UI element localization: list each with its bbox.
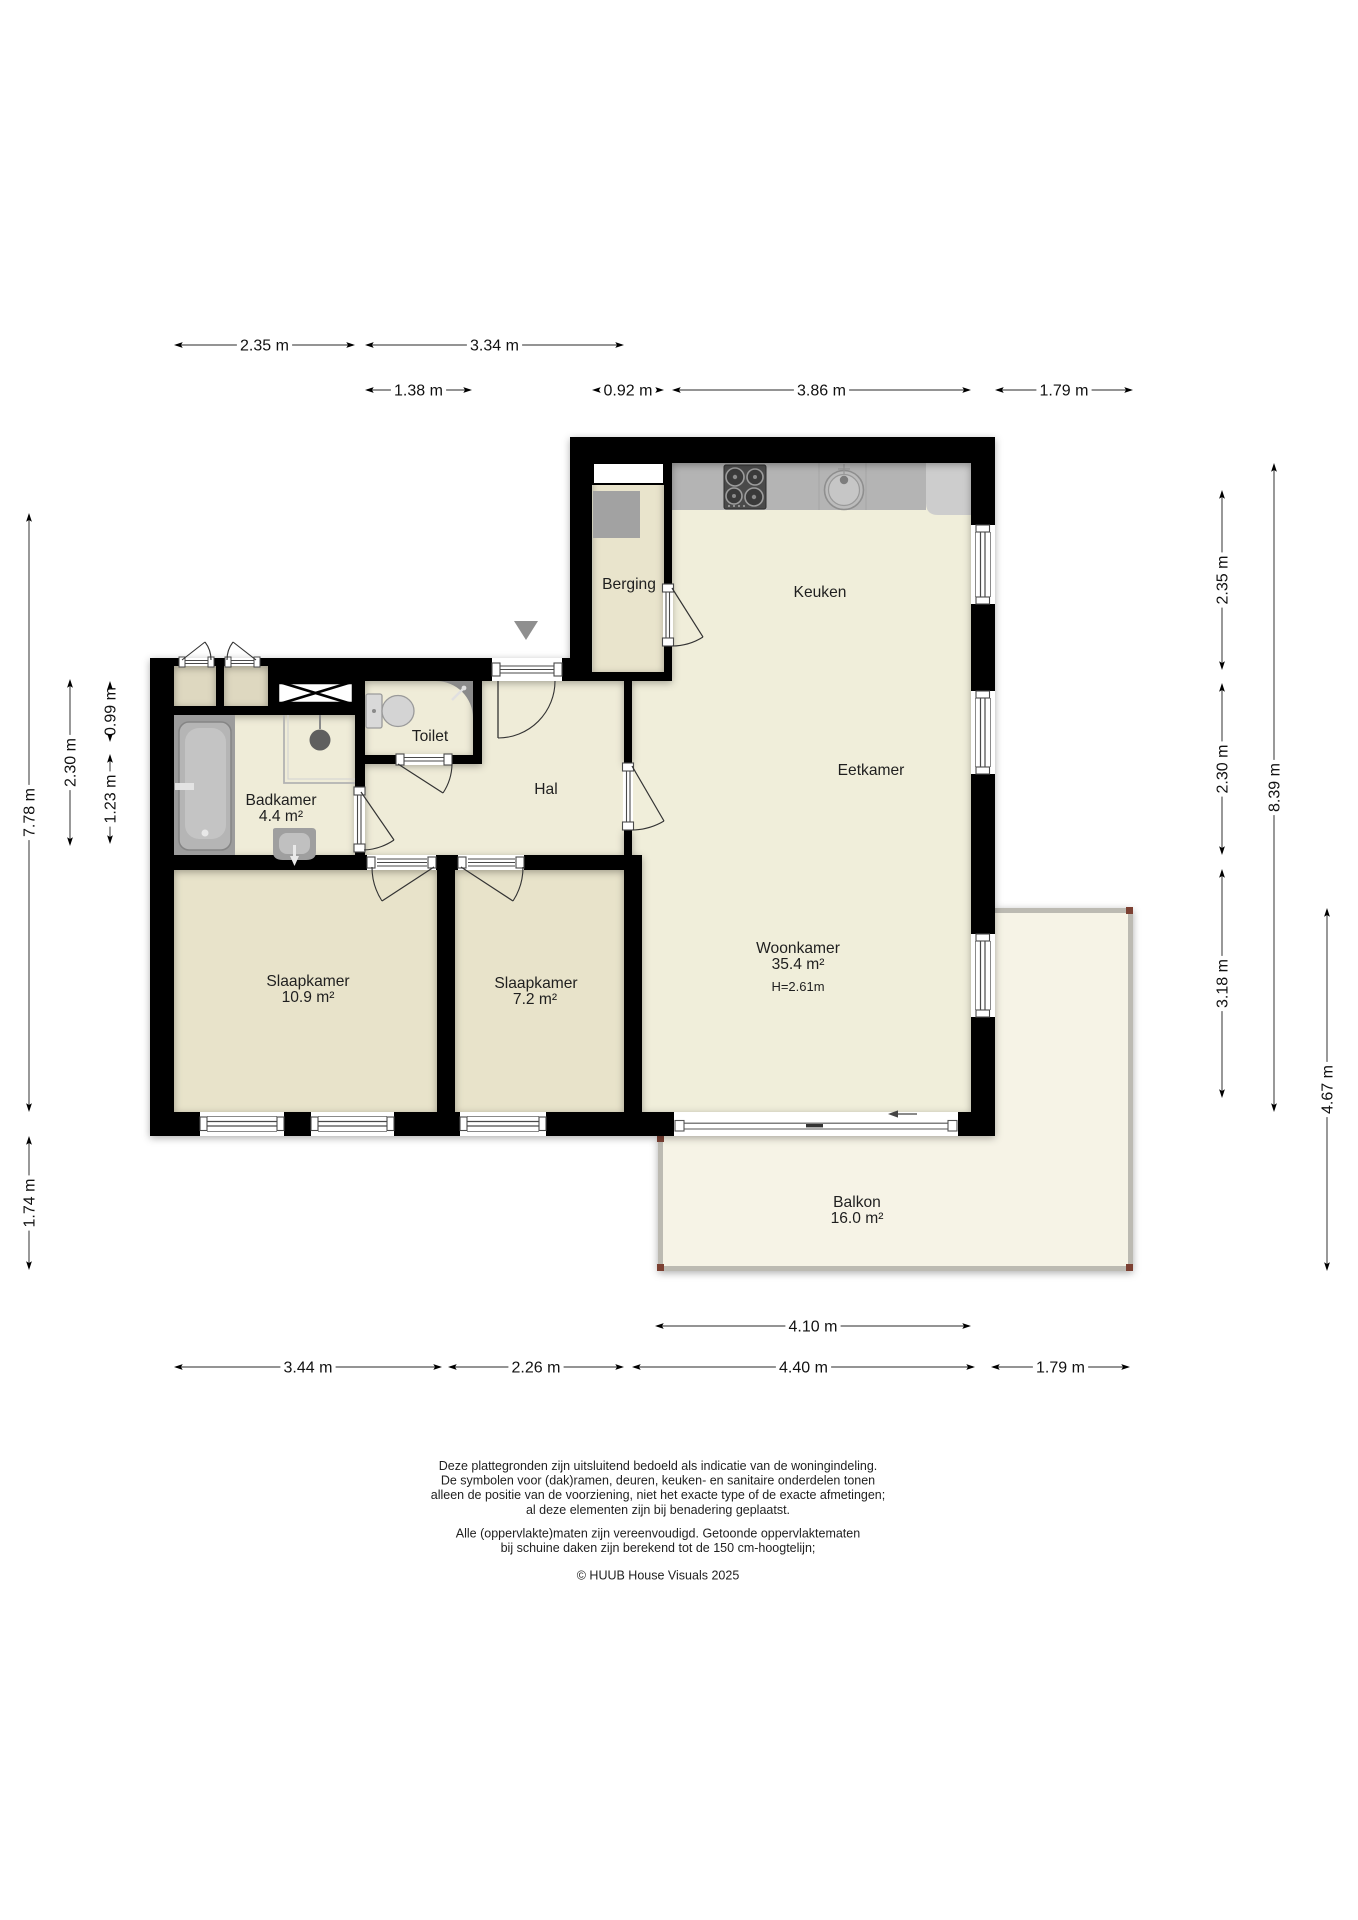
svg-text:alleen de positie van de voorz: alleen de positie van de voorziening, ni… (431, 1488, 885, 1502)
svg-text:Toilet: Toilet (412, 728, 449, 745)
svg-text:16.0 m²: 16.0 m² (831, 1210, 884, 1227)
svg-text:Keuken: Keuken (794, 584, 847, 601)
svg-text:2.35 m: 2.35 m (1215, 556, 1232, 605)
svg-text:1.23 m: 1.23 m (103, 775, 120, 824)
svg-text:Balkon: Balkon (833, 1194, 881, 1211)
svg-text:1.79 m: 1.79 m (1036, 1360, 1085, 1377)
svg-text:De symbolen voor (dak)ramen, d: De symbolen voor (dak)ramen, deuren, keu… (441, 1474, 875, 1488)
svg-text:Slaapkamer: Slaapkamer (266, 973, 349, 990)
svg-text:Berging: Berging (602, 576, 656, 593)
svg-text:H=2.61m: H=2.61m (771, 979, 824, 994)
svg-text:0.92 m: 0.92 m (604, 383, 653, 400)
svg-text:0.99 m: 0.99 m (103, 687, 120, 736)
svg-text:3.18 m: 3.18 m (1215, 959, 1232, 1008)
svg-text:Alle (oppervlakte)maten zijn v: Alle (oppervlakte)maten zijn vereenvoudi… (456, 1527, 860, 1541)
svg-text:1.74 m: 1.74 m (22, 1179, 39, 1228)
svg-text:Hal: Hal (534, 781, 557, 798)
svg-text:4.4 m²: 4.4 m² (259, 808, 303, 825)
svg-text:Eetkamer: Eetkamer (838, 762, 905, 779)
svg-text:Slaapkamer: Slaapkamer (494, 975, 577, 992)
svg-text:2.30 m: 2.30 m (1215, 745, 1232, 794)
svg-text:Deze plattegronden zijn uitslu: Deze plattegronden zijn uitsluitend bedo… (439, 1459, 878, 1473)
svg-text:7.78 m: 7.78 m (22, 788, 39, 837)
svg-text:3.86 m: 3.86 m (797, 383, 846, 400)
svg-text:1.79 m: 1.79 m (1040, 383, 1089, 400)
svg-text:al deze elementen zijn bij ben: al deze elementen zijn bij benadering ge… (526, 1503, 790, 1517)
svg-text:7.2 m²: 7.2 m² (513, 991, 557, 1008)
svg-text:4.67 m: 4.67 m (1320, 1065, 1337, 1114)
svg-text:© HUUB House Visuals 2025: © HUUB House Visuals 2025 (577, 1569, 740, 1583)
svg-text:2.30 m: 2.30 m (63, 738, 80, 787)
svg-text:Badkamer: Badkamer (245, 792, 316, 809)
svg-text:Woonkamer: Woonkamer (756, 940, 840, 957)
svg-text:3.44 m: 3.44 m (284, 1360, 333, 1377)
svg-text:10.9 m²: 10.9 m² (282, 989, 335, 1006)
svg-text:35.4 m²: 35.4 m² (772, 956, 825, 973)
svg-text:4.40 m: 4.40 m (779, 1360, 828, 1377)
svg-text:bij schuine daken zijn bereken: bij schuine daken zijn berekend tot de 1… (501, 1541, 816, 1555)
svg-text:2.26 m: 2.26 m (512, 1360, 561, 1377)
svg-text:3.34 m: 3.34 m (470, 338, 519, 355)
svg-text:1.38 m: 1.38 m (394, 383, 443, 400)
svg-text:2.35 m: 2.35 m (240, 338, 289, 355)
svg-text:4.10 m: 4.10 m (789, 1319, 838, 1336)
svg-text:8.39 m: 8.39 m (1267, 763, 1284, 812)
